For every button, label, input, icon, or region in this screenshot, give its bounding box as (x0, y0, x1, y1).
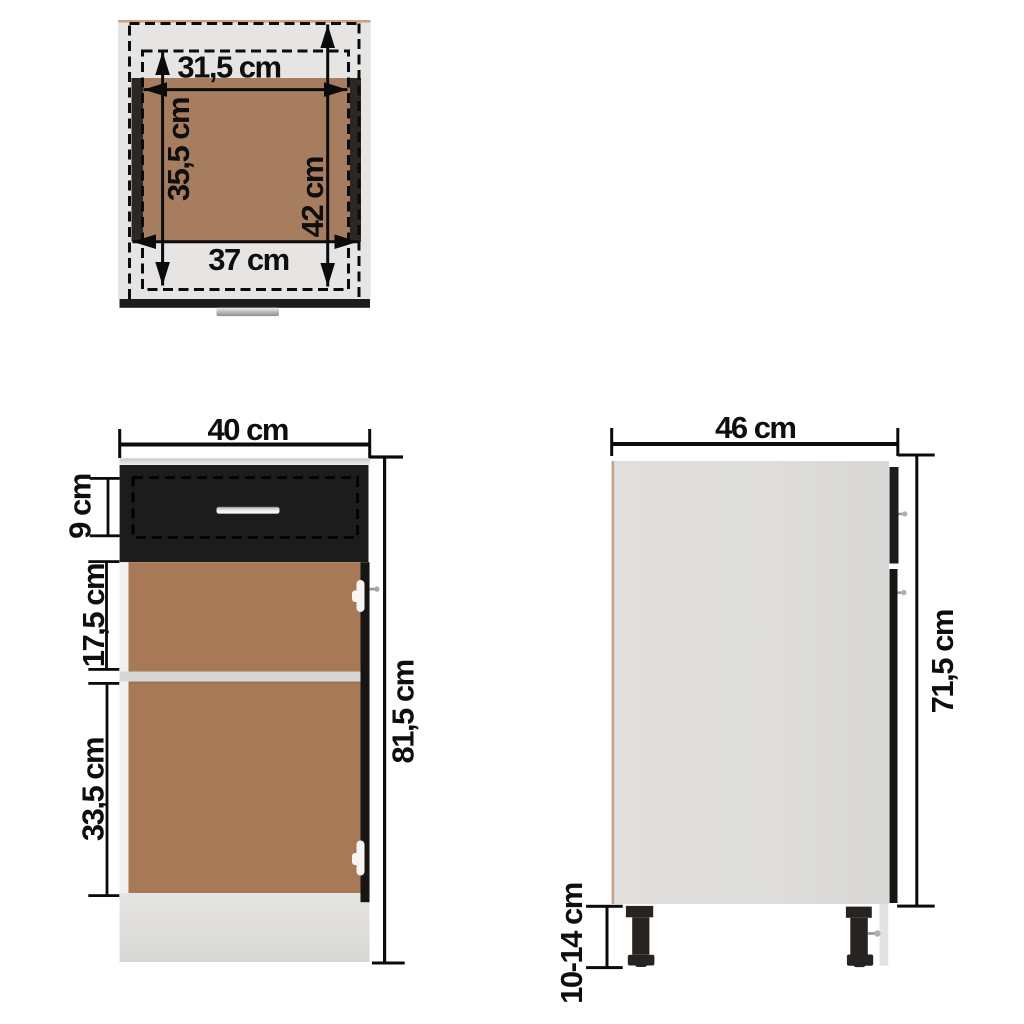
svg-text:33,5 cm: 33,5 cm (75, 738, 110, 841)
svg-text:81,5 cm: 81,5 cm (386, 660, 421, 763)
svg-text:40 cm: 40 cm (207, 412, 287, 447)
svg-text:10-14 cm: 10-14 cm (554, 883, 589, 1004)
svg-text:9 cm: 9 cm (63, 474, 98, 539)
svg-text:42 cm: 42 cm (295, 157, 330, 237)
svg-text:35,5 cm: 35,5 cm (161, 98, 196, 201)
svg-text:46 cm: 46 cm (715, 410, 795, 445)
svg-text:17,5 cm: 17,5 cm (76, 564, 111, 667)
svg-text:31,5 cm: 31,5 cm (177, 50, 280, 85)
svg-text:37 cm: 37 cm (208, 242, 288, 277)
svg-text:71,5 cm: 71,5 cm (925, 610, 960, 713)
